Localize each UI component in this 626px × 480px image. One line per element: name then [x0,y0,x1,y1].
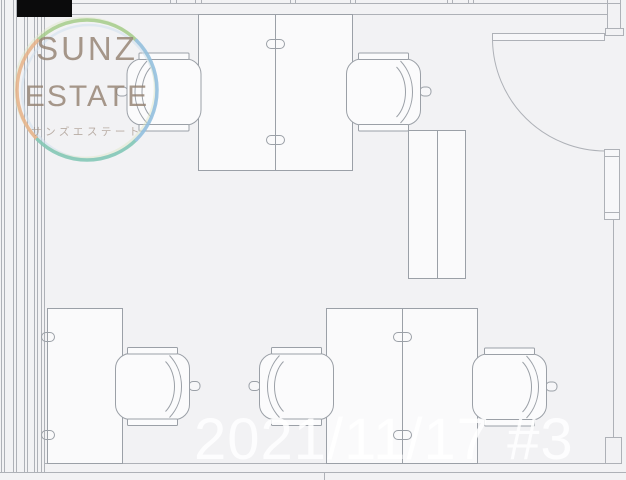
brand-logo: SUNZ ESTATE サンズエステート [12,15,162,165]
brand-subtitle: サンズエステート [12,127,162,138]
desk-top [199,15,353,171]
date-watermark: 2021/11/17 #3 [194,406,574,473]
brand-name-line2: ESTATE [12,82,162,112]
cabinet [409,131,466,279]
brand-wordmark: SUNZ ESTATE サンズエステート [12,32,162,138]
office-chair [347,53,432,131]
brand-name-line1: SUNZ [12,32,162,65]
entrance-door [493,34,620,220]
floorplan-screenshot: SUNZ ESTATE サンズエステート 2021/11/17 #3 [0,0,626,480]
door-swing-arc [493,41,606,152]
right-wall-top [606,0,624,36]
door-frame-post [605,150,620,220]
door-leaf [493,34,605,41]
desk-bottom-left [42,309,123,464]
top-wall [44,0,620,15]
right-wall-bottom [606,220,622,464]
office-chair [116,348,201,426]
